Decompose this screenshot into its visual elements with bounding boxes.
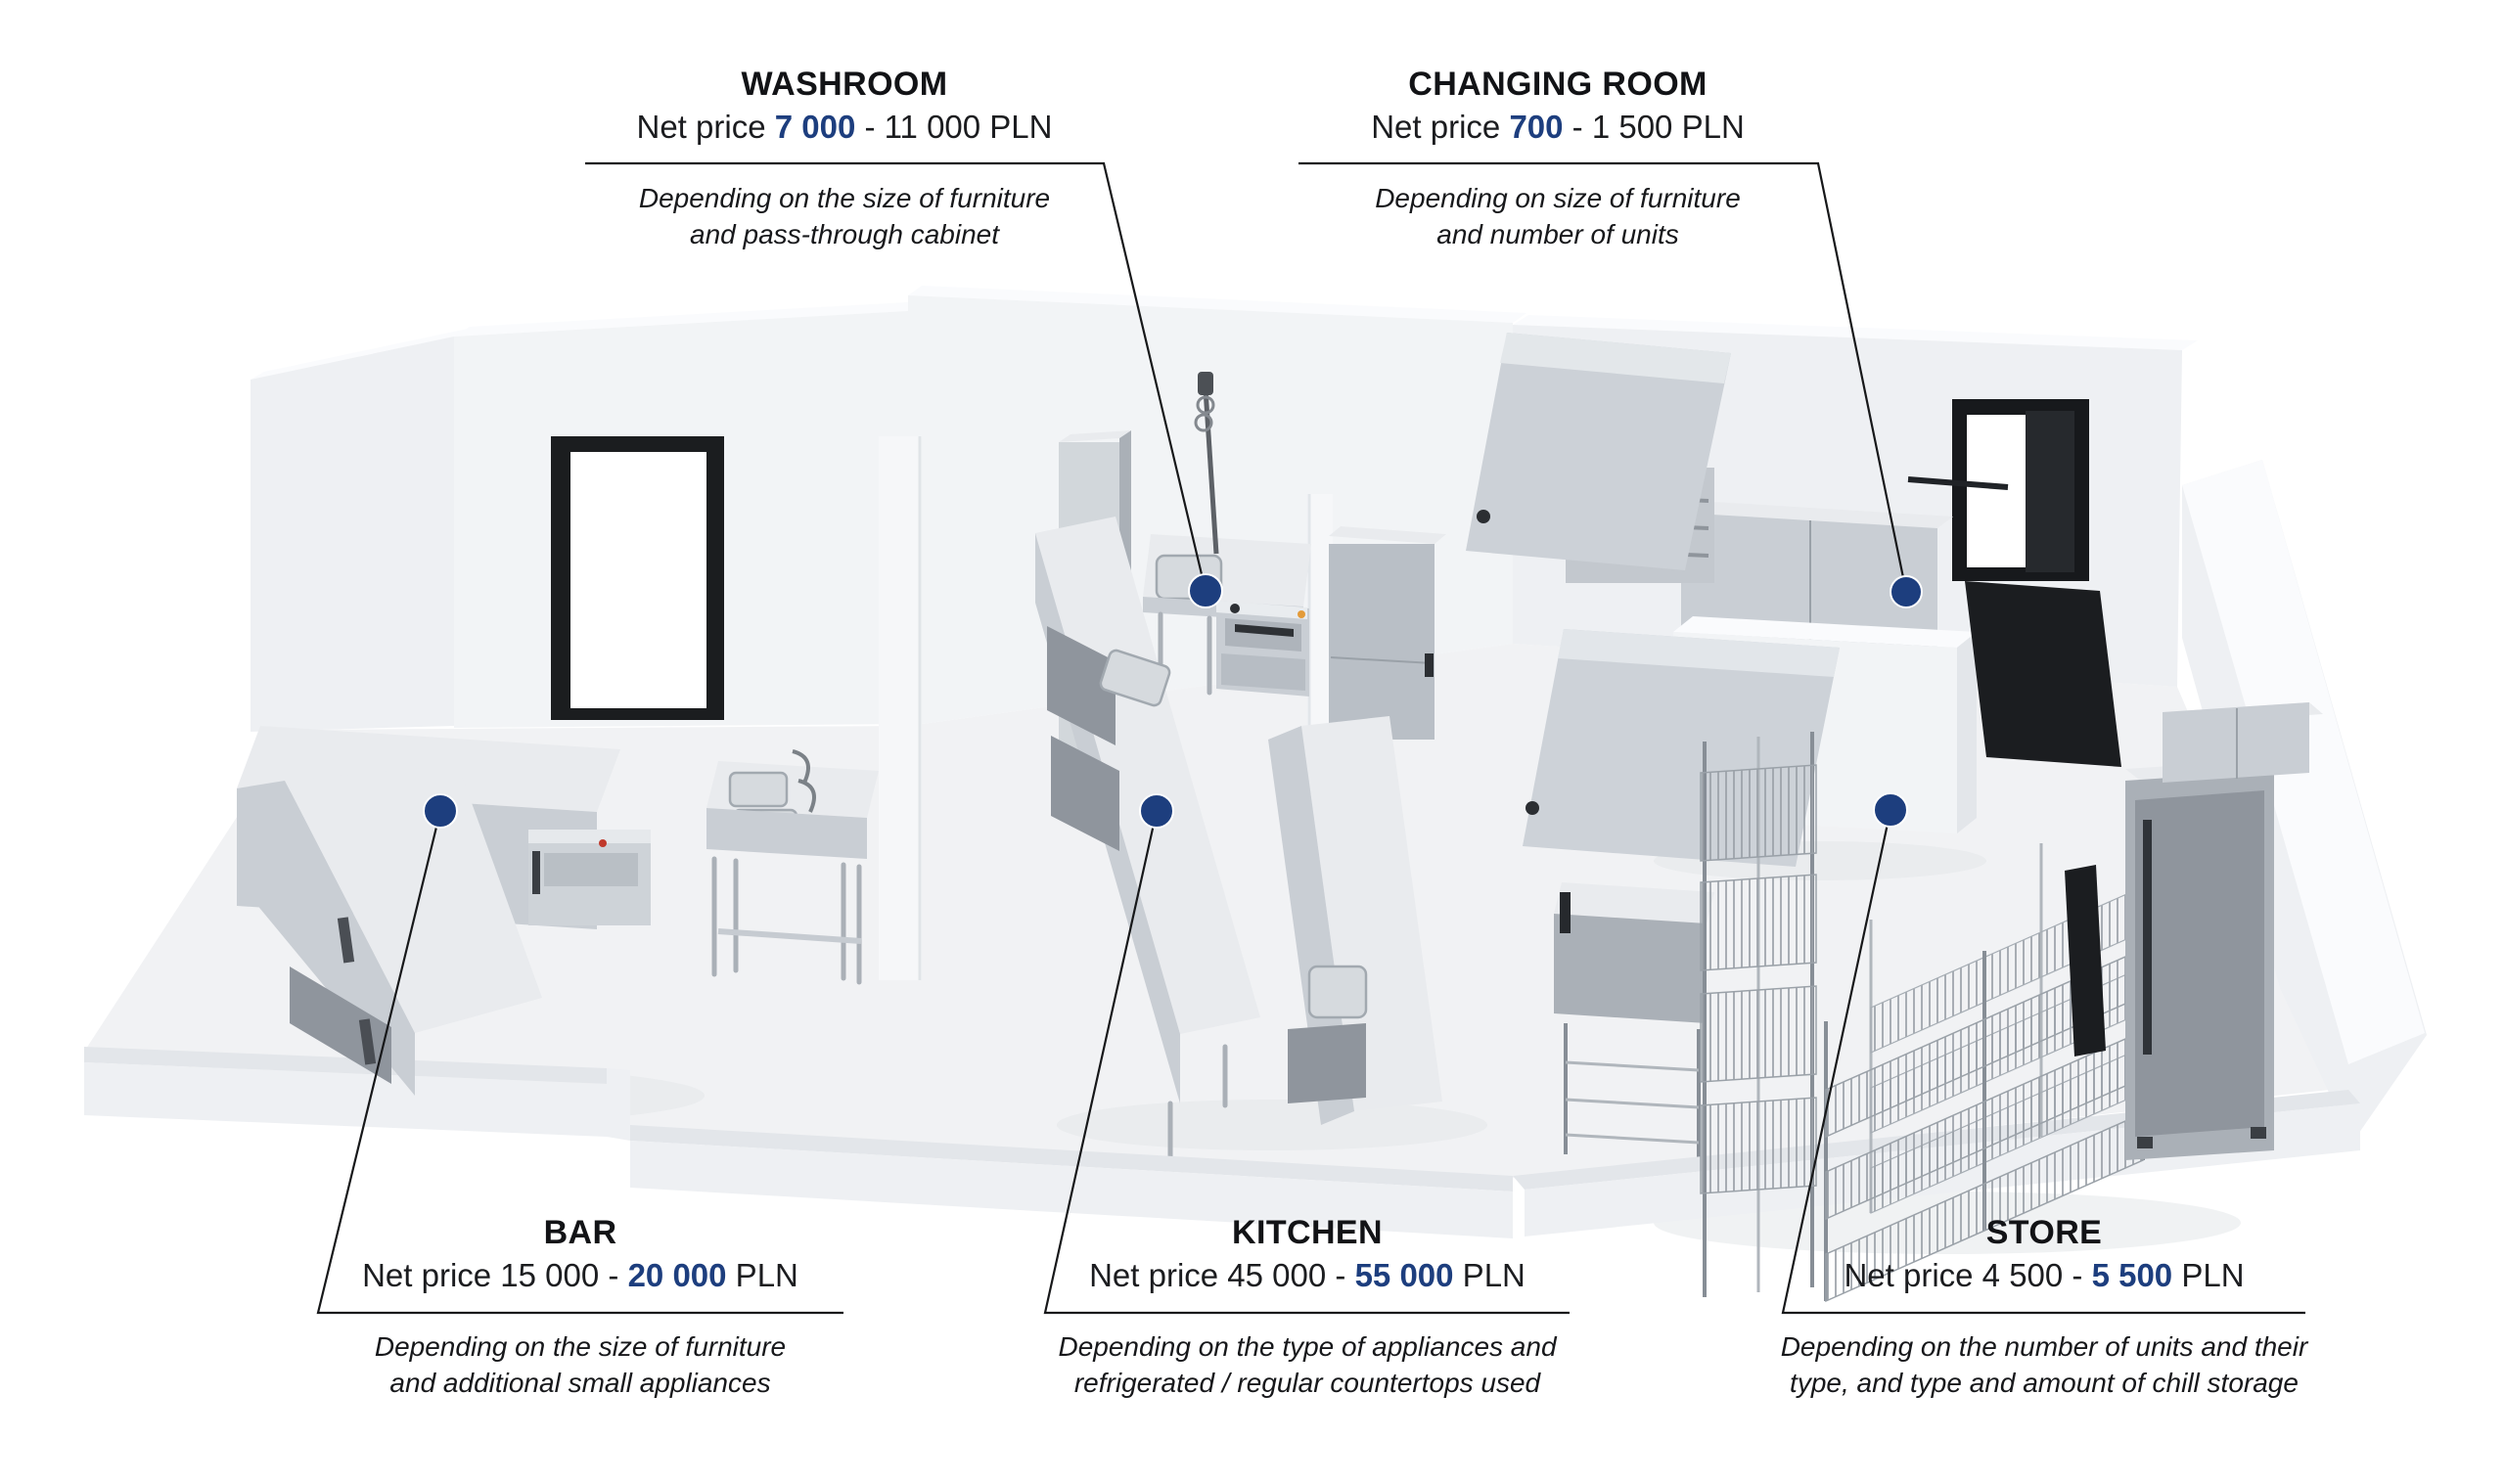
washroom-label: WASHROOM Net price 7 000 - 11 000 PLN De… xyxy=(531,65,1158,252)
kitchen-marker-dot[interactable] xyxy=(1140,794,1173,828)
bar-dishwasher xyxy=(528,830,651,925)
undercounter-dishwasher xyxy=(1216,601,1309,697)
store-price: Net price 4 500 - 5 500 PLN xyxy=(1731,1255,2357,1296)
kitchen-price: Net price 45 000 - 55 000 PLN xyxy=(994,1255,1620,1296)
changing-room-price: Net price 700 - 1 500 PLN xyxy=(1245,107,1871,148)
bar-title: BAR xyxy=(267,1213,893,1252)
changing-room-title: CHANGING ROOM xyxy=(1245,65,1871,104)
pass-through-cabinet xyxy=(1329,526,1446,740)
changing-room-note: Depending on size of furnitureand number… xyxy=(1245,180,1871,252)
changing-room-label: CHANGING ROOM Net price 700 - 1 500 PLN … xyxy=(1245,65,1871,252)
kitchen-label: KITCHEN Net price 45 000 - 55 000 PLN De… xyxy=(994,1213,1620,1401)
bar-label: BAR Net price 15 000 - 20 000 PLN Depend… xyxy=(267,1213,893,1401)
store-marker-dot[interactable] xyxy=(1874,793,1907,827)
left-door xyxy=(551,436,724,720)
store-title: STORE xyxy=(1731,1213,2357,1252)
kitchen-note: Depending on the type of appliances andr… xyxy=(994,1328,1620,1401)
washroom-marker-dot[interactable] xyxy=(1189,574,1222,607)
changing-room-marker-dot[interactable] xyxy=(1890,576,1922,607)
store-label: STORE Net price 4 500 - 5 500 PLN Depend… xyxy=(1731,1213,2357,1401)
washroom-title: WASHROOM xyxy=(531,65,1158,104)
washroom-note: Depending on the size of furnitureand pa… xyxy=(531,180,1158,252)
bar-price: Net price 15 000 - 20 000 PLN xyxy=(267,1255,893,1296)
bar-note: Depending on the size of furnitureand ad… xyxy=(267,1328,893,1401)
kitchen-title: KITCHEN xyxy=(994,1213,1620,1252)
bar-marker-dot[interactable] xyxy=(424,794,457,828)
store-refrigerator xyxy=(2125,759,2292,1160)
store-wall-cabinets xyxy=(2163,702,2323,783)
back-door xyxy=(1952,399,2089,581)
store-note: Depending on the number of units and the… xyxy=(1731,1328,2357,1401)
infographic-canvas: WASHROOM Net price 7 000 - 11 000 PLN De… xyxy=(0,0,2505,1484)
washroom-price: Net price 7 000 - 11 000 PLN xyxy=(531,107,1158,148)
